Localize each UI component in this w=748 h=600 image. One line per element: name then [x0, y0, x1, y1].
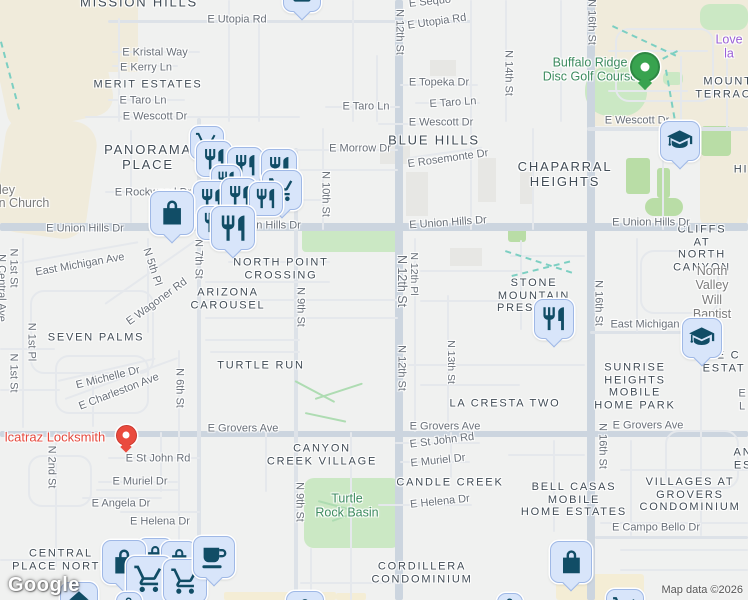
- bldg-area: [450, 248, 482, 266]
- restaurant-marker[interactable]: [534, 299, 574, 339]
- minor-road: [20, 241, 139, 264]
- minor-road: [22, 238, 24, 428]
- minor-road: [395, 442, 480, 444]
- minor-road: [420, 384, 520, 386]
- minor-road: [85, 116, 300, 118]
- residential-loop-road: [640, 250, 719, 314]
- minor-road: [112, 65, 178, 67]
- fork-knife-icon: [540, 305, 567, 332]
- minor-road: [726, 55, 728, 128]
- street-label: East Michigan: [610, 319, 679, 332]
- minor-road: [120, 511, 200, 513]
- minor-road: [205, 339, 300, 341]
- minor-road: [325, 106, 400, 108]
- minor-road: [205, 299, 398, 301]
- shopping-bag-icon: [157, 198, 187, 228]
- minor-road: [505, 0, 507, 122]
- medium-road: [595, 536, 748, 539]
- street-label: N 1st St: [7, 353, 20, 392]
- minor-road: [600, 522, 748, 524]
- minor-road: [205, 281, 330, 283]
- locksmith-marker[interactable]: [116, 425, 137, 446]
- minor-road: [520, 240, 522, 330]
- shopping-bag-marker[interactable]: [286, 591, 324, 600]
- minor-road: [620, 549, 748, 551]
- minor-road: [350, 432, 352, 600]
- minor-road: [450, 432, 452, 478]
- fld-area: [645, 198, 683, 216]
- fld-area: [626, 158, 650, 194]
- minor-road: [414, 238, 416, 432]
- fork-knife-icon: [218, 213, 248, 243]
- minor-road: [108, 457, 200, 459]
- residential-loop-road: [28, 455, 92, 507]
- medium-road: [590, 331, 690, 334]
- minor-road: [300, 582, 400, 584]
- bldg-area: [478, 158, 496, 202]
- area-label: PANORAMA PLACE: [104, 143, 192, 173]
- minor-road: [205, 317, 398, 319]
- google-logo[interactable]: Google: [8, 574, 80, 597]
- map-canvas[interactable]: MISSION HILLSMERIT ESTATESPANORAMA PLACE…: [0, 0, 748, 600]
- minor-road: [420, 270, 520, 272]
- minor-road: [228, 261, 330, 263]
- minor-road: [470, 0, 472, 230]
- minor-road: [160, 432, 162, 492]
- minor-road: [118, 18, 120, 122]
- street-label: E L: [738, 387, 745, 412]
- minor-road: [228, 0, 230, 122]
- minor-road: [98, 481, 178, 483]
- area-label: LA CRESTA TWO: [449, 398, 560, 411]
- minor-road: [130, 130, 132, 223]
- minor-road: [636, 238, 638, 332]
- golf-course-marker[interactable]: [630, 52, 660, 82]
- map-data-attribution: Map data ©2026: [662, 584, 744, 596]
- school-marker[interactable]: [682, 318, 722, 358]
- minor-road: [378, 123, 472, 125]
- street-label: East Michigan Ave: [34, 251, 125, 279]
- major-road: [0, 223, 748, 231]
- shopping-cart-marker[interactable]: [606, 589, 644, 600]
- medium-road: [108, 20, 472, 23]
- minor-road: [322, 128, 324, 230]
- minor-road: [82, 497, 162, 499]
- minor-road: [400, 461, 470, 463]
- street-label: E Helena Dr: [130, 516, 190, 529]
- street-label: E Sequo: [408, 0, 451, 10]
- shopping-cart-icon: [133, 563, 165, 595]
- shopping-bag-icon: [557, 548, 586, 577]
- minor-road: [415, 102, 480, 104]
- street-label: N Central Ave: [0, 254, 7, 322]
- minor-road: [620, 569, 748, 571]
- minor-road: [408, 364, 585, 366]
- creek-line: [305, 412, 346, 423]
- shopping-bag-icon: [120, 596, 137, 600]
- area-label: BELL CASAS MOBILE HOME ESTATES: [521, 481, 627, 519]
- minor-road: [210, 351, 300, 353]
- minor-road: [265, 432, 267, 492]
- minor-road: [376, 55, 378, 122]
- bldg-area: [430, 60, 456, 76]
- street-label: N 16th St: [596, 423, 609, 469]
- park-area: [700, 4, 748, 30]
- area-label: CANDLE CREEK: [396, 477, 503, 490]
- street-label: E Topeka Dr: [409, 77, 469, 90]
- fork-knife-icon: [227, 184, 251, 208]
- minor-road: [0, 389, 60, 391]
- minor-road: [112, 51, 200, 53]
- residential-loop-road: [55, 355, 149, 414]
- coffee-marker[interactable]: [193, 536, 235, 578]
- street-label: N 1st St: [7, 248, 20, 287]
- restaurant-marker[interactable]: [211, 206, 255, 250]
- minor-road: [96, 489, 180, 491]
- street-label: N 5th Pl: [140, 246, 164, 287]
- shopping-bag-marker[interactable]: [150, 191, 194, 235]
- minor-road: [352, 0, 354, 122]
- minor-road: [532, 128, 534, 230]
- street-label: N 14th St: [502, 50, 515, 96]
- area-label: TURTLE RUN: [217, 360, 304, 373]
- shopping-cart-icon: [612, 595, 638, 600]
- minor-road: [420, 300, 520, 302]
- residential-loop-road: [665, 430, 739, 489]
- street-label: N 10th St: [319, 171, 332, 217]
- creek-line: [315, 383, 363, 400]
- store-marker[interactable]: [283, 0, 321, 12]
- minor-road: [560, 0, 562, 122]
- medium-road: [294, 148, 298, 600]
- street-label: E Angela Dr: [92, 498, 151, 511]
- street-label: E Taro Ln: [120, 95, 167, 108]
- major-road: [0, 431, 748, 437]
- street-label: E St John Rd: [126, 453, 191, 466]
- area-label: CANYON CREEK VILLAGE: [267, 442, 377, 467]
- shopping-bag-marker[interactable]: [116, 592, 142, 600]
- minor-road: [378, 504, 472, 506]
- major-road: [587, 0, 595, 600]
- shopping-bag-marker[interactable]: [497, 593, 523, 600]
- graduation-cap-icon: [666, 127, 693, 154]
- minor-road: [108, 99, 185, 101]
- school-marker[interactable]: [660, 121, 700, 161]
- bldg-area: [406, 172, 428, 216]
- minor-road: [400, 84, 478, 86]
- minor-road: [300, 169, 398, 171]
- shopping-bag-marker[interactable]: [550, 541, 592, 583]
- coffee-cup-icon: [200, 543, 229, 572]
- store-icon: [289, 0, 315, 6]
- minor-road: [258, 18, 260, 122]
- graduation-cap-icon: [688, 324, 715, 351]
- minor-road: [508, 454, 585, 456]
- area-label: SUNRISE HEIGHTS MOBILE HOME PARK: [594, 362, 675, 413]
- minor-road: [0, 559, 90, 561]
- street-label: E Helena Dr: [410, 493, 471, 512]
- fork-knife-icon: [254, 187, 277, 210]
